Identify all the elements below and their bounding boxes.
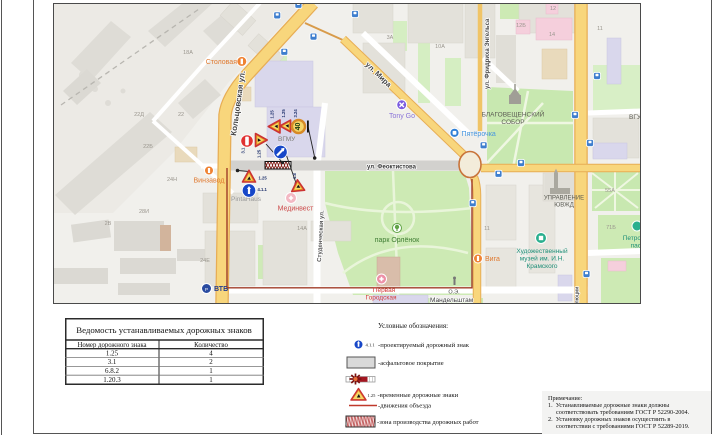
svg-text:ул. Фридриха Энгельса: ул. Фридриха Энгельса	[485, 18, 491, 89]
svg-text:Количество: Количество	[194, 342, 228, 349]
svg-text:22Б: 22Б	[143, 144, 153, 150]
svg-text:1.25: 1.25	[257, 149, 262, 158]
svg-text:22: 22	[178, 112, 184, 118]
svg-text:Винзавод: Винзавод	[193, 178, 224, 185]
svg-text:ВГМУ: ВГМУ	[278, 136, 296, 143]
svg-text:3.1: 3.1	[108, 358, 117, 366]
svg-text:12Б: 12Б	[516, 23, 526, 29]
svg-text:11: 11	[597, 26, 603, 32]
svg-text:3.1: 3.1	[241, 147, 246, 153]
svg-text:22Д: 22Д	[134, 112, 144, 118]
svg-text:-асфальтовое покрытие: -асфальтовое покрытие	[378, 360, 444, 367]
svg-text:ВГУ: ВГУ	[629, 114, 641, 121]
svg-text:пас: пас	[631, 243, 641, 250]
svg-text:ЮВЖД: ЮВЖД	[554, 203, 574, 209]
svg-text:Мединвест: Мединвест	[278, 206, 315, 213]
svg-text:24Н: 24Н	[167, 177, 177, 183]
svg-text:БЛАГОВЕЩЕНСКИЙ: БЛАГОВЕЩЕНСКИЙ	[482, 110, 545, 119]
svg-text:6.8.2: 6.8.2	[105, 367, 120, 375]
svg-text:Петро: Петро	[623, 235, 641, 242]
svg-text:-зона производства дорожных ра: -зона производства дорожных работ	[377, 419, 479, 426]
svg-text:Первая: Первая	[373, 287, 396, 294]
svg-text:Номер дорожного знака: Номер дорожного знака	[77, 342, 146, 349]
svg-text:28И: 28И	[139, 209, 149, 215]
svg-text:1.25: 1.25	[270, 110, 275, 119]
svg-text:14: 14	[549, 32, 555, 38]
svg-text:2В: 2В	[105, 221, 112, 227]
svg-text:-проектируемый дорожный знак: -проектируемый дорожный знак	[378, 342, 470, 349]
svg-text:11: 11	[484, 226, 490, 232]
svg-text:люции: люции	[575, 287, 581, 304]
svg-text:18А: 18А	[183, 50, 193, 56]
svg-text:14А: 14А	[297, 226, 307, 232]
svg-text:Tony Go: Tony Go	[389, 113, 415, 120]
svg-text:40: 40	[295, 123, 302, 131]
svg-text:ул. Феоктистова: ул. Феоктистова	[367, 165, 417, 171]
svg-text:4.1.1: 4.1.1	[258, 187, 268, 192]
svg-text:12: 12	[550, 6, 556, 12]
svg-text:4: 4	[209, 349, 213, 357]
svg-text:4.1.1: 4.1.1	[366, 343, 376, 348]
svg-text:3.24: 3.24	[293, 109, 298, 118]
svg-text:Пятёрочка: Пятёрочка	[462, 131, 496, 138]
svg-text:Условные обозначения:: Условные обозначения:	[378, 322, 448, 330]
svg-text:1.20.3: 1.20.3	[103, 376, 121, 384]
svg-text:1: 1	[209, 376, 213, 384]
svg-text:24Е: 24Е	[200, 258, 210, 264]
svg-text:3А: 3А	[387, 35, 394, 41]
svg-text:парк Орлёнок: парк Орлёнок	[375, 237, 420, 244]
svg-text:10А: 10А	[435, 44, 445, 50]
svg-text:Художественный: Художественный	[516, 247, 568, 255]
svg-text:71Б: 71Б	[606, 225, 616, 231]
svg-text:СОБОР: СОБОР	[501, 119, 524, 126]
svg-text:УПРАВЛЕНИЕ: УПРАВЛЕНИЕ	[544, 196, 584, 202]
svg-text:2: 2	[209, 358, 213, 366]
svg-text:P: P	[205, 287, 208, 292]
svg-text:Вига: Вига	[485, 256, 500, 263]
svg-text:Мандельштам: Мандельштам	[430, 297, 474, 304]
svg-text:1.8: 1.8	[292, 173, 297, 179]
svg-text:О.Э.: О.Э.	[448, 290, 460, 296]
svg-text:ВТБ: ВТБ	[214, 286, 228, 293]
svg-text:Крамского: Крамского	[526, 263, 557, 270]
svg-text:1.25: 1.25	[106, 349, 119, 357]
svg-text:Столовая: Столовая	[206, 59, 238, 66]
svg-text:Городская: Городская	[366, 295, 397, 302]
svg-text:1.25: 1.25	[281, 109, 286, 118]
svg-text:55А: 55А	[605, 188, 615, 194]
svg-text:Ведомость устанавливаемых доро: Ведомость устанавливаемых дорожных знако…	[76, 325, 252, 335]
svg-text:1.25: 1.25	[259, 176, 268, 181]
svg-text:-движения объезда: -движения объезда	[378, 403, 431, 410]
svg-text:музей им. И.Н.: музей им. И.Н.	[520, 255, 565, 263]
svg-text:-временные дорожные знаки: -временные дорожные знаки	[378, 392, 459, 399]
svg-text:1.25: 1.25	[368, 393, 377, 398]
svg-text:1: 1	[209, 367, 213, 375]
